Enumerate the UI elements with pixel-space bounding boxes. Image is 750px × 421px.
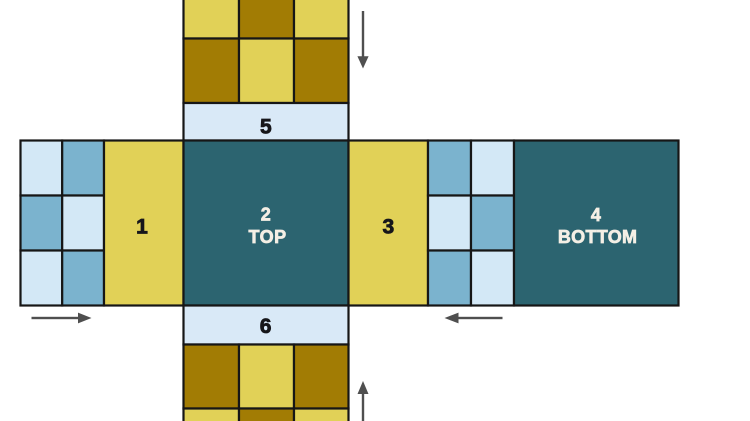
svg-text:2: 2 — [261, 205, 271, 225]
svg-text:3: 3 — [382, 215, 394, 238]
svg-text:5: 5 — [260, 116, 272, 139]
svg-text:1: 1 — [136, 215, 148, 238]
svg-text:4: 4 — [591, 205, 601, 225]
svg-text:TOP: TOP — [249, 227, 287, 247]
svg-text:6: 6 — [260, 315, 272, 338]
svg-text:BOTTOM: BOTTOM — [558, 227, 637, 247]
